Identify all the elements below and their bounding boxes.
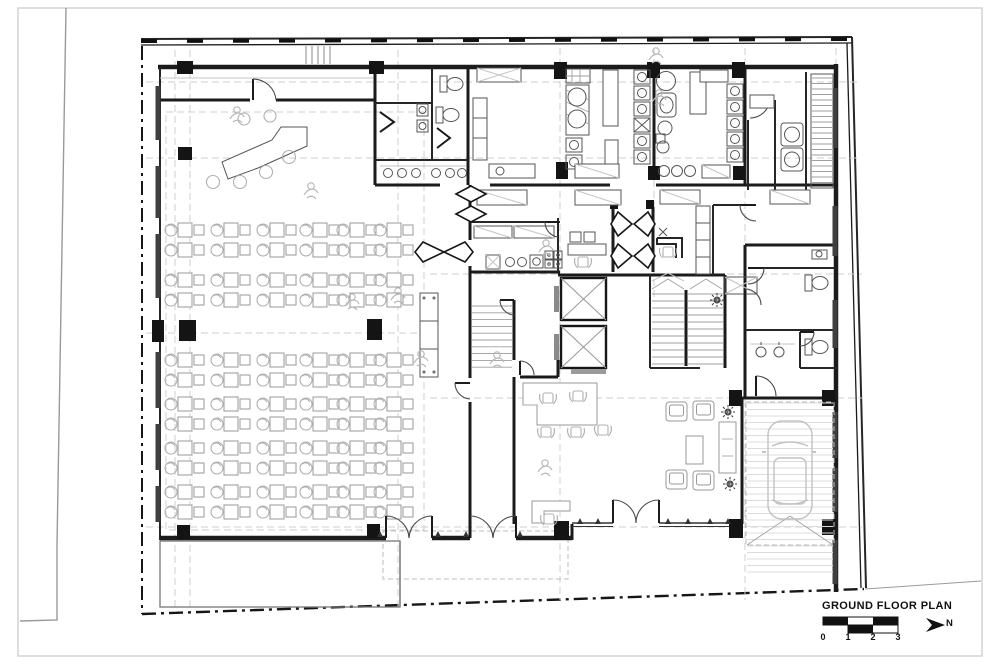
scale-label-1: 1 [841,632,855,642]
scale-label-2: 2 [866,632,880,642]
scale-label-3: 3 [891,632,905,642]
plan-title: GROUND FLOOR PLAN [822,600,952,612]
scale-label-0: 0 [816,632,830,642]
floor-plan-drawing [0,0,1000,666]
north-arrow: N [924,616,958,634]
north-label: N [946,618,953,629]
elevators [554,278,606,374]
drawing-sheet: GROUND FLOOR PLAN 0 1 2 3 N [0,0,1000,666]
north-arrow-icon [924,616,946,634]
